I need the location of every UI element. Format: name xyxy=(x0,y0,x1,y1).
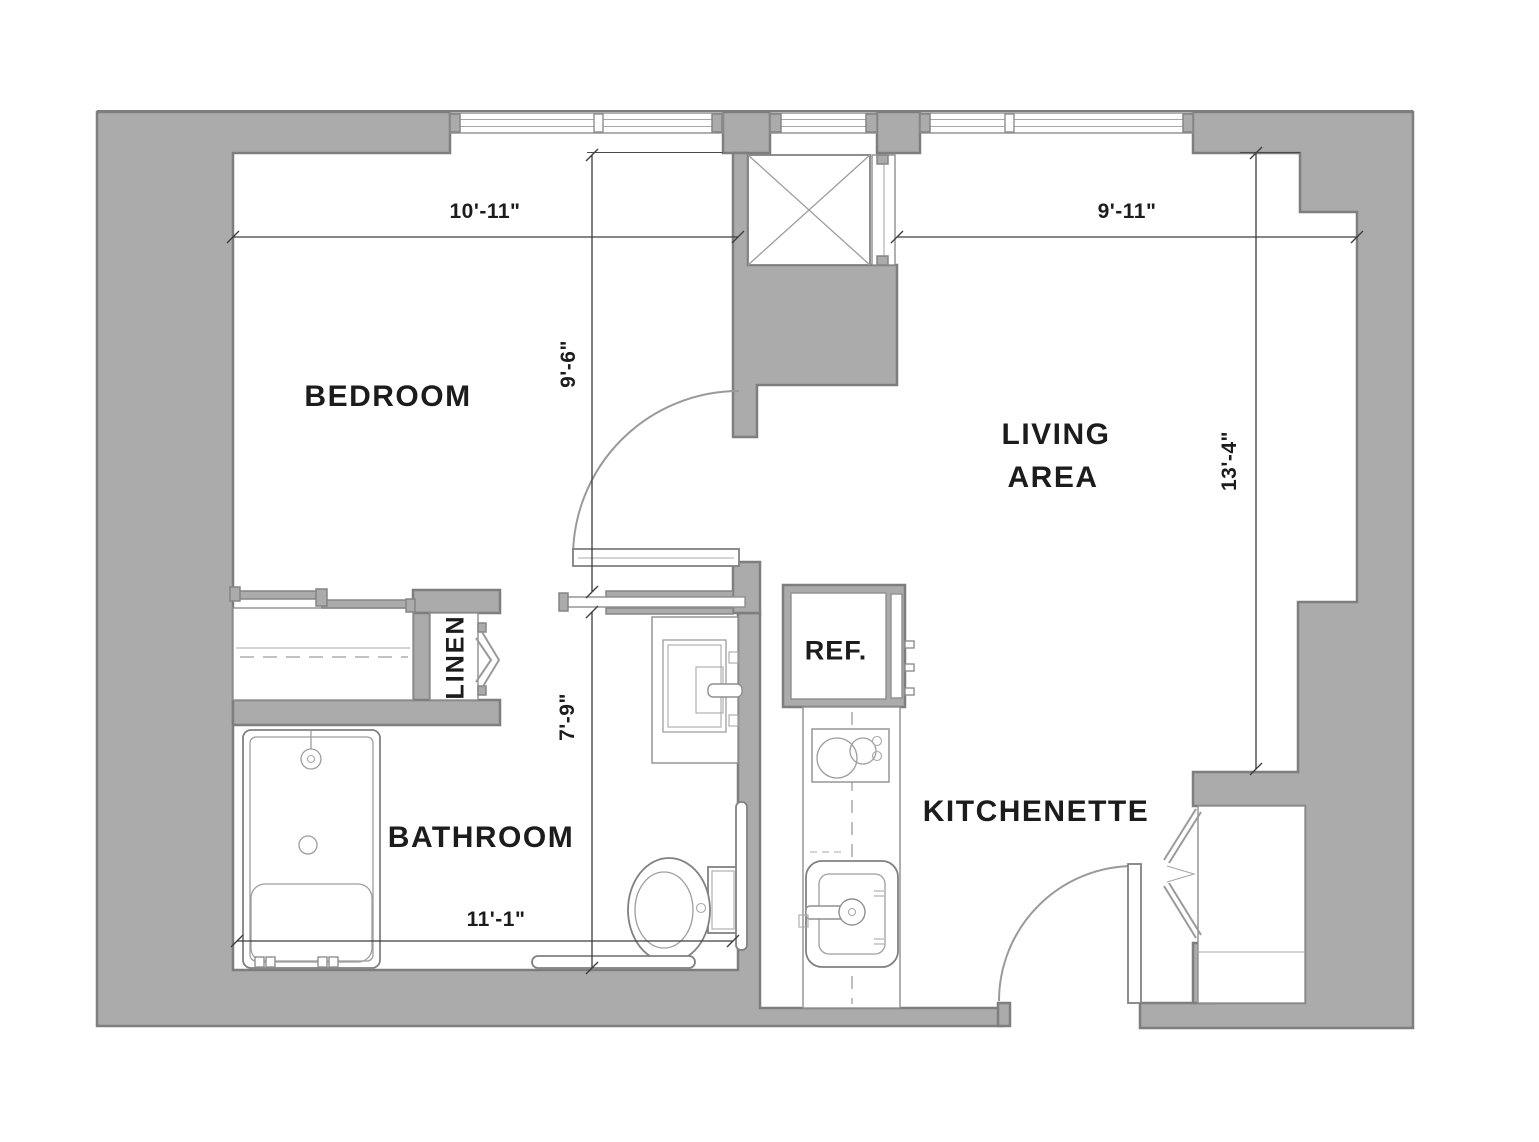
bedroom-label: BEDROOM xyxy=(304,380,471,414)
toilet-bowl xyxy=(628,858,710,962)
bathroom-pocket-door xyxy=(559,591,745,614)
closet-interior xyxy=(233,608,413,700)
pocket-door-leaf xyxy=(567,597,745,607)
wall-closet-linen-divider xyxy=(413,613,430,703)
window-mullion xyxy=(594,114,603,132)
linen-closet-label: LINEN xyxy=(442,615,471,700)
bedroom-door-swing-arc xyxy=(573,391,739,557)
wall-top-block-a xyxy=(723,112,770,153)
refrigerator-door xyxy=(891,594,902,698)
entry-closet xyxy=(1164,806,1305,1003)
bedroom-door xyxy=(573,391,739,566)
bathroom-vanity xyxy=(652,617,742,763)
dim-living-depth-label: 13'-4" xyxy=(1218,431,1242,491)
window-shaft xyxy=(770,113,877,133)
linen-door xyxy=(476,623,499,695)
entry-door-leaf xyxy=(1128,864,1141,1003)
dim-living-width-label: 9'-11" xyxy=(1098,200,1157,224)
window-post xyxy=(920,114,930,132)
kitchen-sink xyxy=(799,861,898,967)
shaft-door-cap xyxy=(877,155,888,164)
bathroom-label: BATHROOM xyxy=(388,821,574,855)
window-post xyxy=(866,114,877,132)
window-living xyxy=(920,113,1193,133)
shaft-door-cap xyxy=(877,256,888,265)
entry-closet-interior xyxy=(1198,806,1305,1003)
living-area-label-line2: AREA xyxy=(1007,461,1098,495)
cooktop xyxy=(812,729,889,782)
bathtub xyxy=(243,730,380,968)
dim-bedroom-width-label: 10'-11" xyxy=(449,200,520,224)
bathroom-faucet xyxy=(708,684,742,697)
wall-below-closets xyxy=(233,700,500,725)
windows xyxy=(450,113,1193,133)
entry-door-swing-arc xyxy=(999,866,1134,1001)
wall-top-block-b xyxy=(877,112,920,153)
wall-linen-top xyxy=(413,590,500,613)
floor-plan: BEDROOM LIVING AREA BATHROOM KITCHENETTE… xyxy=(0,0,1539,1142)
window-post xyxy=(770,114,781,132)
window-post xyxy=(1183,114,1193,132)
dim-bath-hall-depth-label: 7'-9" xyxy=(556,693,580,741)
grab-bar-horizontal xyxy=(532,956,695,968)
living-area-label-line1: LIVING xyxy=(1001,418,1110,452)
window-post xyxy=(450,114,460,132)
kitchenette-label: KITCHENETTE xyxy=(923,795,1150,829)
wall-entry-jamb xyxy=(998,1003,1010,1026)
entry-door xyxy=(999,864,1141,1003)
dim-bedroom-depth-label: 9'-6" xyxy=(557,340,581,388)
window-post xyxy=(712,114,722,132)
shaft xyxy=(748,155,895,265)
floor-plan-drawing xyxy=(0,0,1539,1142)
grab-bar-vertical xyxy=(736,802,747,950)
window-mullion xyxy=(1005,114,1014,132)
refrigerator-label: REF. xyxy=(805,636,868,667)
dim-bathroom-width-label: 11'-1" xyxy=(467,908,526,932)
toilet xyxy=(628,858,738,962)
window-bedroom xyxy=(450,113,723,133)
bifold-doors xyxy=(1164,809,1201,938)
